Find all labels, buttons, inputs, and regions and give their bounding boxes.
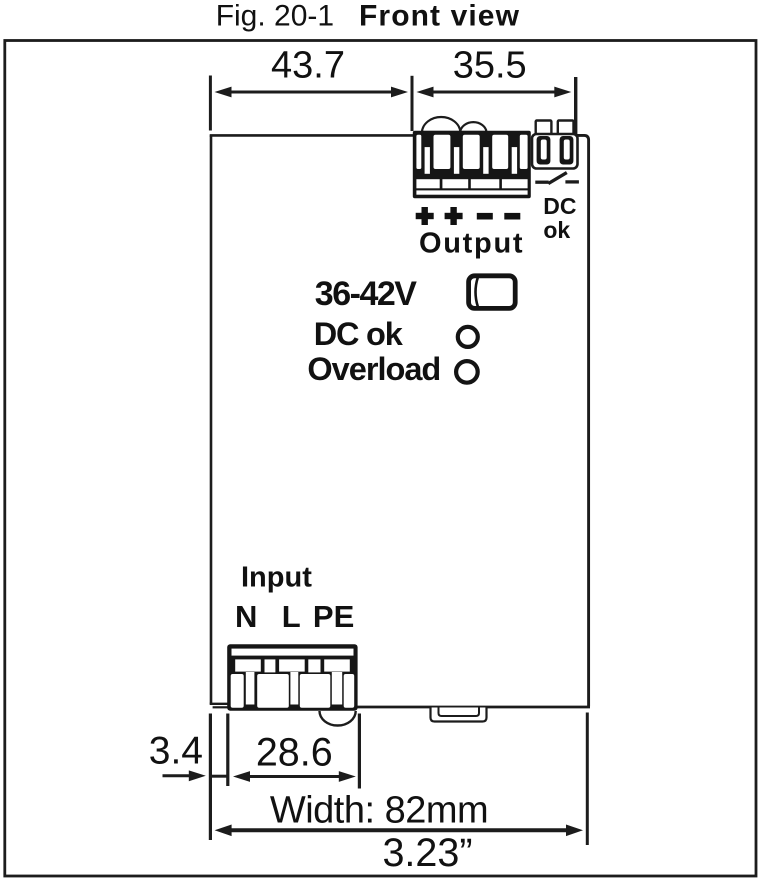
svg-text:Fig. 20-1: Fig. 20-1 xyxy=(216,0,334,33)
svg-text:28.6: 28.6 xyxy=(256,731,333,775)
svg-text:DC: DC xyxy=(543,193,576,219)
svg-text:Width: 82mm: Width: 82mm xyxy=(270,789,488,831)
svg-text:L: L xyxy=(282,599,301,634)
svg-text:Input: Input xyxy=(241,562,312,594)
svg-text:43.7: 43.7 xyxy=(271,45,345,87)
svg-text:35.5: 35.5 xyxy=(453,45,527,87)
svg-text:Front view: Front view xyxy=(359,0,520,33)
svg-text:36-42V: 36-42V xyxy=(315,275,417,313)
svg-text:N: N xyxy=(235,599,257,634)
svg-text:Overload: Overload xyxy=(307,351,440,387)
svg-text:ok: ok xyxy=(543,217,570,243)
svg-text:3.23”: 3.23” xyxy=(382,831,472,875)
svg-text:DC ok: DC ok xyxy=(314,316,404,352)
svg-text:3.4: 3.4 xyxy=(149,730,203,773)
svg-text:PE: PE xyxy=(313,599,354,634)
svg-text:Output: Output xyxy=(419,228,524,260)
